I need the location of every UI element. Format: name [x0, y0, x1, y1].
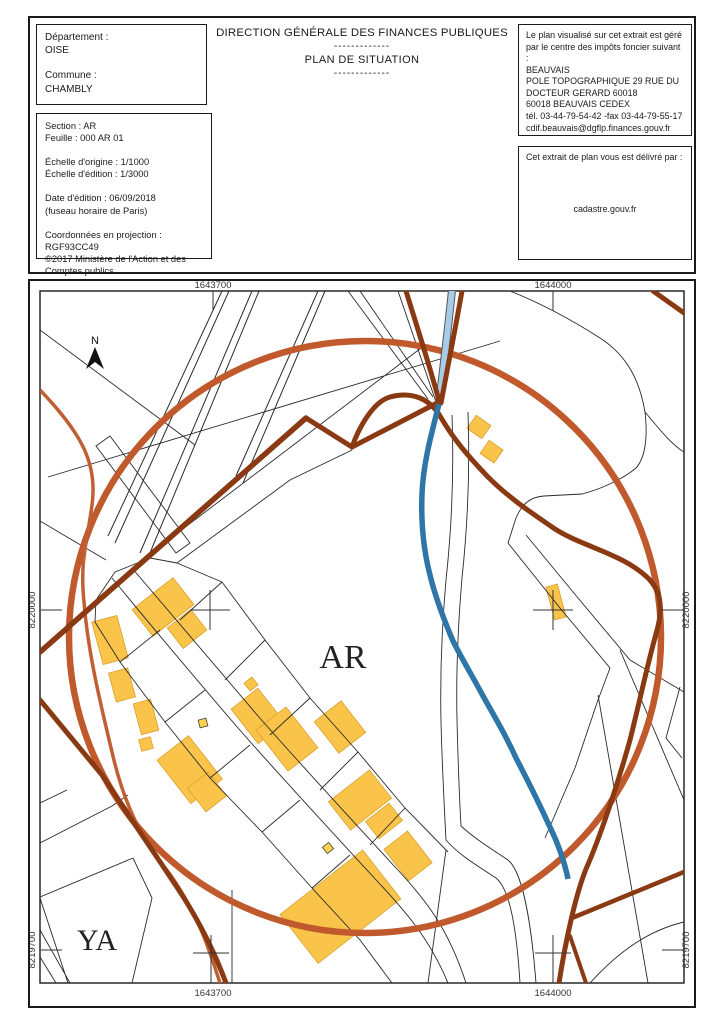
separator-dashes: ------------- — [212, 66, 512, 81]
commune-info-box: Département : OISE Commune : CHAMBLY — [36, 24, 207, 105]
departement-value: OISE — [45, 44, 198, 57]
section-sw-label: YA — [77, 924, 117, 957]
sheet-info-text: Section : AR Feuille : 000 AR 01 Échelle… — [45, 120, 203, 277]
commune-label: Commune : — [45, 69, 198, 82]
coord-bottom-right: 1644000 — [535, 988, 572, 999]
tax-office-text: Le plan visualisé sur cet extrait est gé… — [526, 30, 684, 134]
delivery-site: cadastre.gouv.fr — [526, 204, 684, 214]
coord-top-right: 1644000 — [535, 281, 572, 291]
situation-map: AR YA N 1643700 1644000 1643700 1644000 … — [30, 281, 694, 1006]
coord-top-left: 1643700 — [195, 281, 232, 291]
separator-dashes: ------------- — [212, 39, 512, 54]
coord-right-bottom: 8219700 — [681, 932, 692, 969]
page-title: DIRECTION GÉNÉRALE DES FINANCES PUBLIQUE… — [212, 27, 512, 39]
title-block: DIRECTION GÉNÉRALE DES FINANCES PUBLIQUE… — [212, 27, 512, 81]
coord-left-bottom: 8219700 — [30, 932, 38, 969]
map-section: AR YA N 1643700 1644000 1643700 1644000 … — [28, 279, 696, 1008]
coord-bottom-left: 1643700 — [195, 988, 232, 999]
north-label: N — [91, 335, 99, 347]
commune-value: CHAMBLY — [45, 83, 198, 96]
departement-label: Département : — [45, 31, 198, 44]
cadastre-plan-page: Département : OISE Commune : CHAMBLY Sec… — [0, 0, 724, 1024]
delivery-box: Cet extrait de plan vous est délivré par… — [518, 146, 692, 260]
page-subtitle: PLAN DE SITUATION — [212, 54, 512, 66]
delivery-label: Cet extrait de plan vous est délivré par… — [526, 152, 684, 162]
section-label: AR — [319, 639, 367, 676]
coord-left-mid: 8220000 — [30, 592, 38, 629]
coord-right-mid: 8220000 — [681, 592, 692, 629]
sheet-info-box: Section : AR Feuille : 000 AR 01 Échelle… — [36, 113, 212, 259]
tax-office-box: Le plan visualisé sur cet extrait est gé… — [518, 24, 692, 136]
